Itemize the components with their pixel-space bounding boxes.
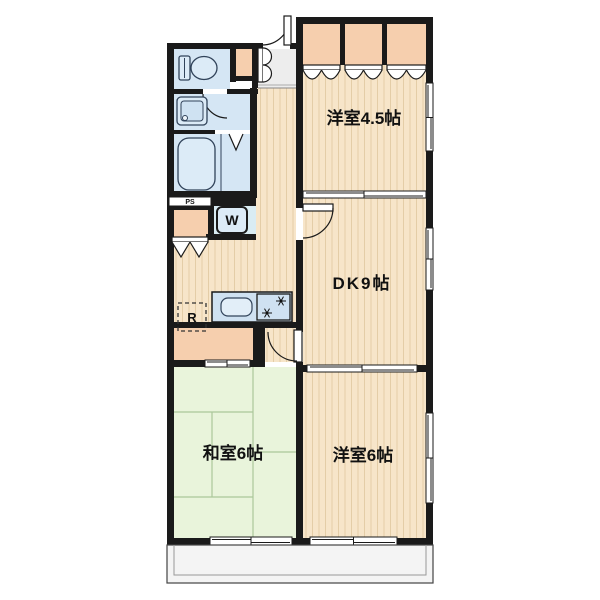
wall-segment — [397, 538, 433, 545]
western45-label: 洋室4.5帖 — [327, 108, 402, 128]
wall-segment — [296, 240, 303, 332]
wall-segment — [426, 290, 433, 413]
wall-segment — [426, 24, 433, 83]
washbasin-icon — [177, 97, 207, 125]
western45-closet-3 — [387, 24, 426, 65]
wall-segment — [382, 24, 387, 65]
wall-segment — [206, 234, 256, 240]
stove-icon — [257, 294, 290, 320]
wall-segment — [296, 17, 433, 24]
wall-segment — [230, 76, 258, 81]
shoe-closet-doors — [258, 48, 263, 82]
kitchen-sink-icon — [221, 298, 252, 316]
refrigerator-label: R — [187, 310, 197, 325]
wall-segment — [417, 365, 426, 372]
wall-segment — [167, 130, 215, 134]
wall-segment — [296, 362, 303, 545]
washer-label: W — [225, 212, 239, 228]
wall-segment — [210, 198, 256, 206]
closet-folding-door — [303, 65, 340, 70]
wall-segment — [253, 328, 258, 360]
western45-closet-2 — [345, 24, 382, 65]
wall-segment — [167, 538, 210, 545]
wall-segment — [167, 89, 203, 94]
wall-segment — [296, 17, 303, 208]
washroom-door-opening — [203, 89, 227, 94]
wall-segment — [167, 43, 174, 545]
wall-segment — [252, 43, 258, 88]
wall-segment — [426, 151, 433, 228]
closet-folding-door — [387, 65, 426, 70]
toilet-icon — [179, 56, 217, 80]
floorplan-canvas: W PS R 洋室4.5帖 DK9 — [0, 0, 600, 600]
oshiire-closet — [174, 328, 253, 360]
pipe-space-label: PS — [185, 199, 195, 206]
wall-segment — [250, 88, 257, 198]
entry-door-leaf — [284, 16, 291, 45]
western45-closet-1 — [303, 24, 340, 65]
hallway-floor — [256, 88, 296, 322]
wall-segment — [250, 360, 265, 367]
kitchen-counter — [212, 292, 292, 322]
western6-label: 洋室6帖 — [333, 445, 393, 465]
shoe-closet — [236, 49, 252, 76]
washing-machine-icon: W — [217, 207, 247, 233]
wall-segment — [167, 206, 210, 210]
washitsu-label: 和室6帖 — [203, 443, 263, 463]
washitsu-door-leaf — [294, 330, 302, 362]
wall-segment — [303, 365, 307, 372]
wall-segment — [258, 328, 265, 362]
balcony — [167, 545, 433, 583]
hall-closet-folding-door — [172, 237, 208, 242]
wall-segment — [340, 24, 345, 65]
hall-closet — [174, 210, 208, 237]
wall-segment — [208, 206, 214, 234]
dk-door-leaf — [303, 204, 333, 211]
pipe-space: PS — [169, 197, 211, 206]
dk-label: DK9帖 — [332, 273, 391, 293]
wall-segment — [167, 360, 205, 367]
wall-segment — [167, 43, 263, 49]
floorplan-page: W PS R 洋室4.5帖 DK9 — [0, 0, 600, 600]
wall-segment — [292, 538, 310, 545]
closet-folding-door — [345, 65, 382, 70]
bathroom-door-opening — [215, 130, 250, 134]
